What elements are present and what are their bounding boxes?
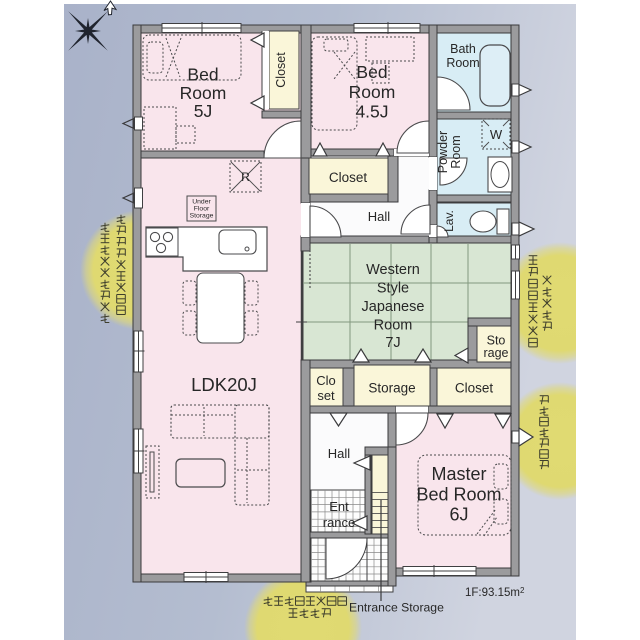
svg-text:W: W xyxy=(490,127,503,142)
svg-text:6J: 6J xyxy=(449,505,468,525)
svg-text:Hall: Hall xyxy=(368,209,391,224)
svg-text:Storage: Storage xyxy=(190,213,214,220)
svg-text:Room: Room xyxy=(374,318,413,334)
svg-text:LDK20J: LDK20J xyxy=(191,374,257,395)
svg-text:Entrance Storage: Entrance Storage xyxy=(349,601,444,615)
svg-text:Bed: Bed xyxy=(356,62,387,82)
svg-text:Bath: Bath xyxy=(450,42,476,56)
svg-text:1F:93.15m2: 1F:93.15m2 xyxy=(465,586,525,599)
svg-text:Clo: Clo xyxy=(316,373,336,388)
svg-text:rage: rage xyxy=(483,346,508,360)
svg-text:Bed: Bed xyxy=(187,65,218,85)
svg-text:5J: 5J xyxy=(194,101,212,121)
svg-text:7J: 7J xyxy=(385,335,400,351)
svg-text:4.5J: 4.5J xyxy=(355,102,388,122)
svg-text:set: set xyxy=(317,388,335,403)
svg-text:Closet: Closet xyxy=(274,52,288,88)
svg-text:Room: Room xyxy=(349,82,396,102)
svg-text:rance: rance xyxy=(323,515,356,530)
svg-text:Japanese: Japanese xyxy=(362,299,425,315)
svg-text:Under: Under xyxy=(192,199,211,206)
svg-text:R: R xyxy=(241,170,250,184)
svg-text:Bed Room: Bed Room xyxy=(416,485,501,505)
svg-text:Lav.: Lav. xyxy=(442,210,456,232)
svg-text:Room: Room xyxy=(446,56,479,70)
svg-text:Western: Western xyxy=(366,262,420,278)
svg-text:Master: Master xyxy=(431,464,486,484)
svg-text:Closet: Closet xyxy=(329,170,368,185)
svg-text:Hall: Hall xyxy=(328,446,351,461)
svg-text:Room: Room xyxy=(180,83,227,103)
svg-text:Style: Style xyxy=(377,281,409,297)
svg-text:Ent: Ent xyxy=(329,499,349,514)
svg-text:Floor: Floor xyxy=(194,206,210,213)
svg-text:Powder: Powder xyxy=(436,131,450,173)
svg-text:Closet: Closet xyxy=(455,381,494,396)
svg-text:Room: Room xyxy=(449,135,463,168)
svg-text:Storage: Storage xyxy=(368,381,415,396)
